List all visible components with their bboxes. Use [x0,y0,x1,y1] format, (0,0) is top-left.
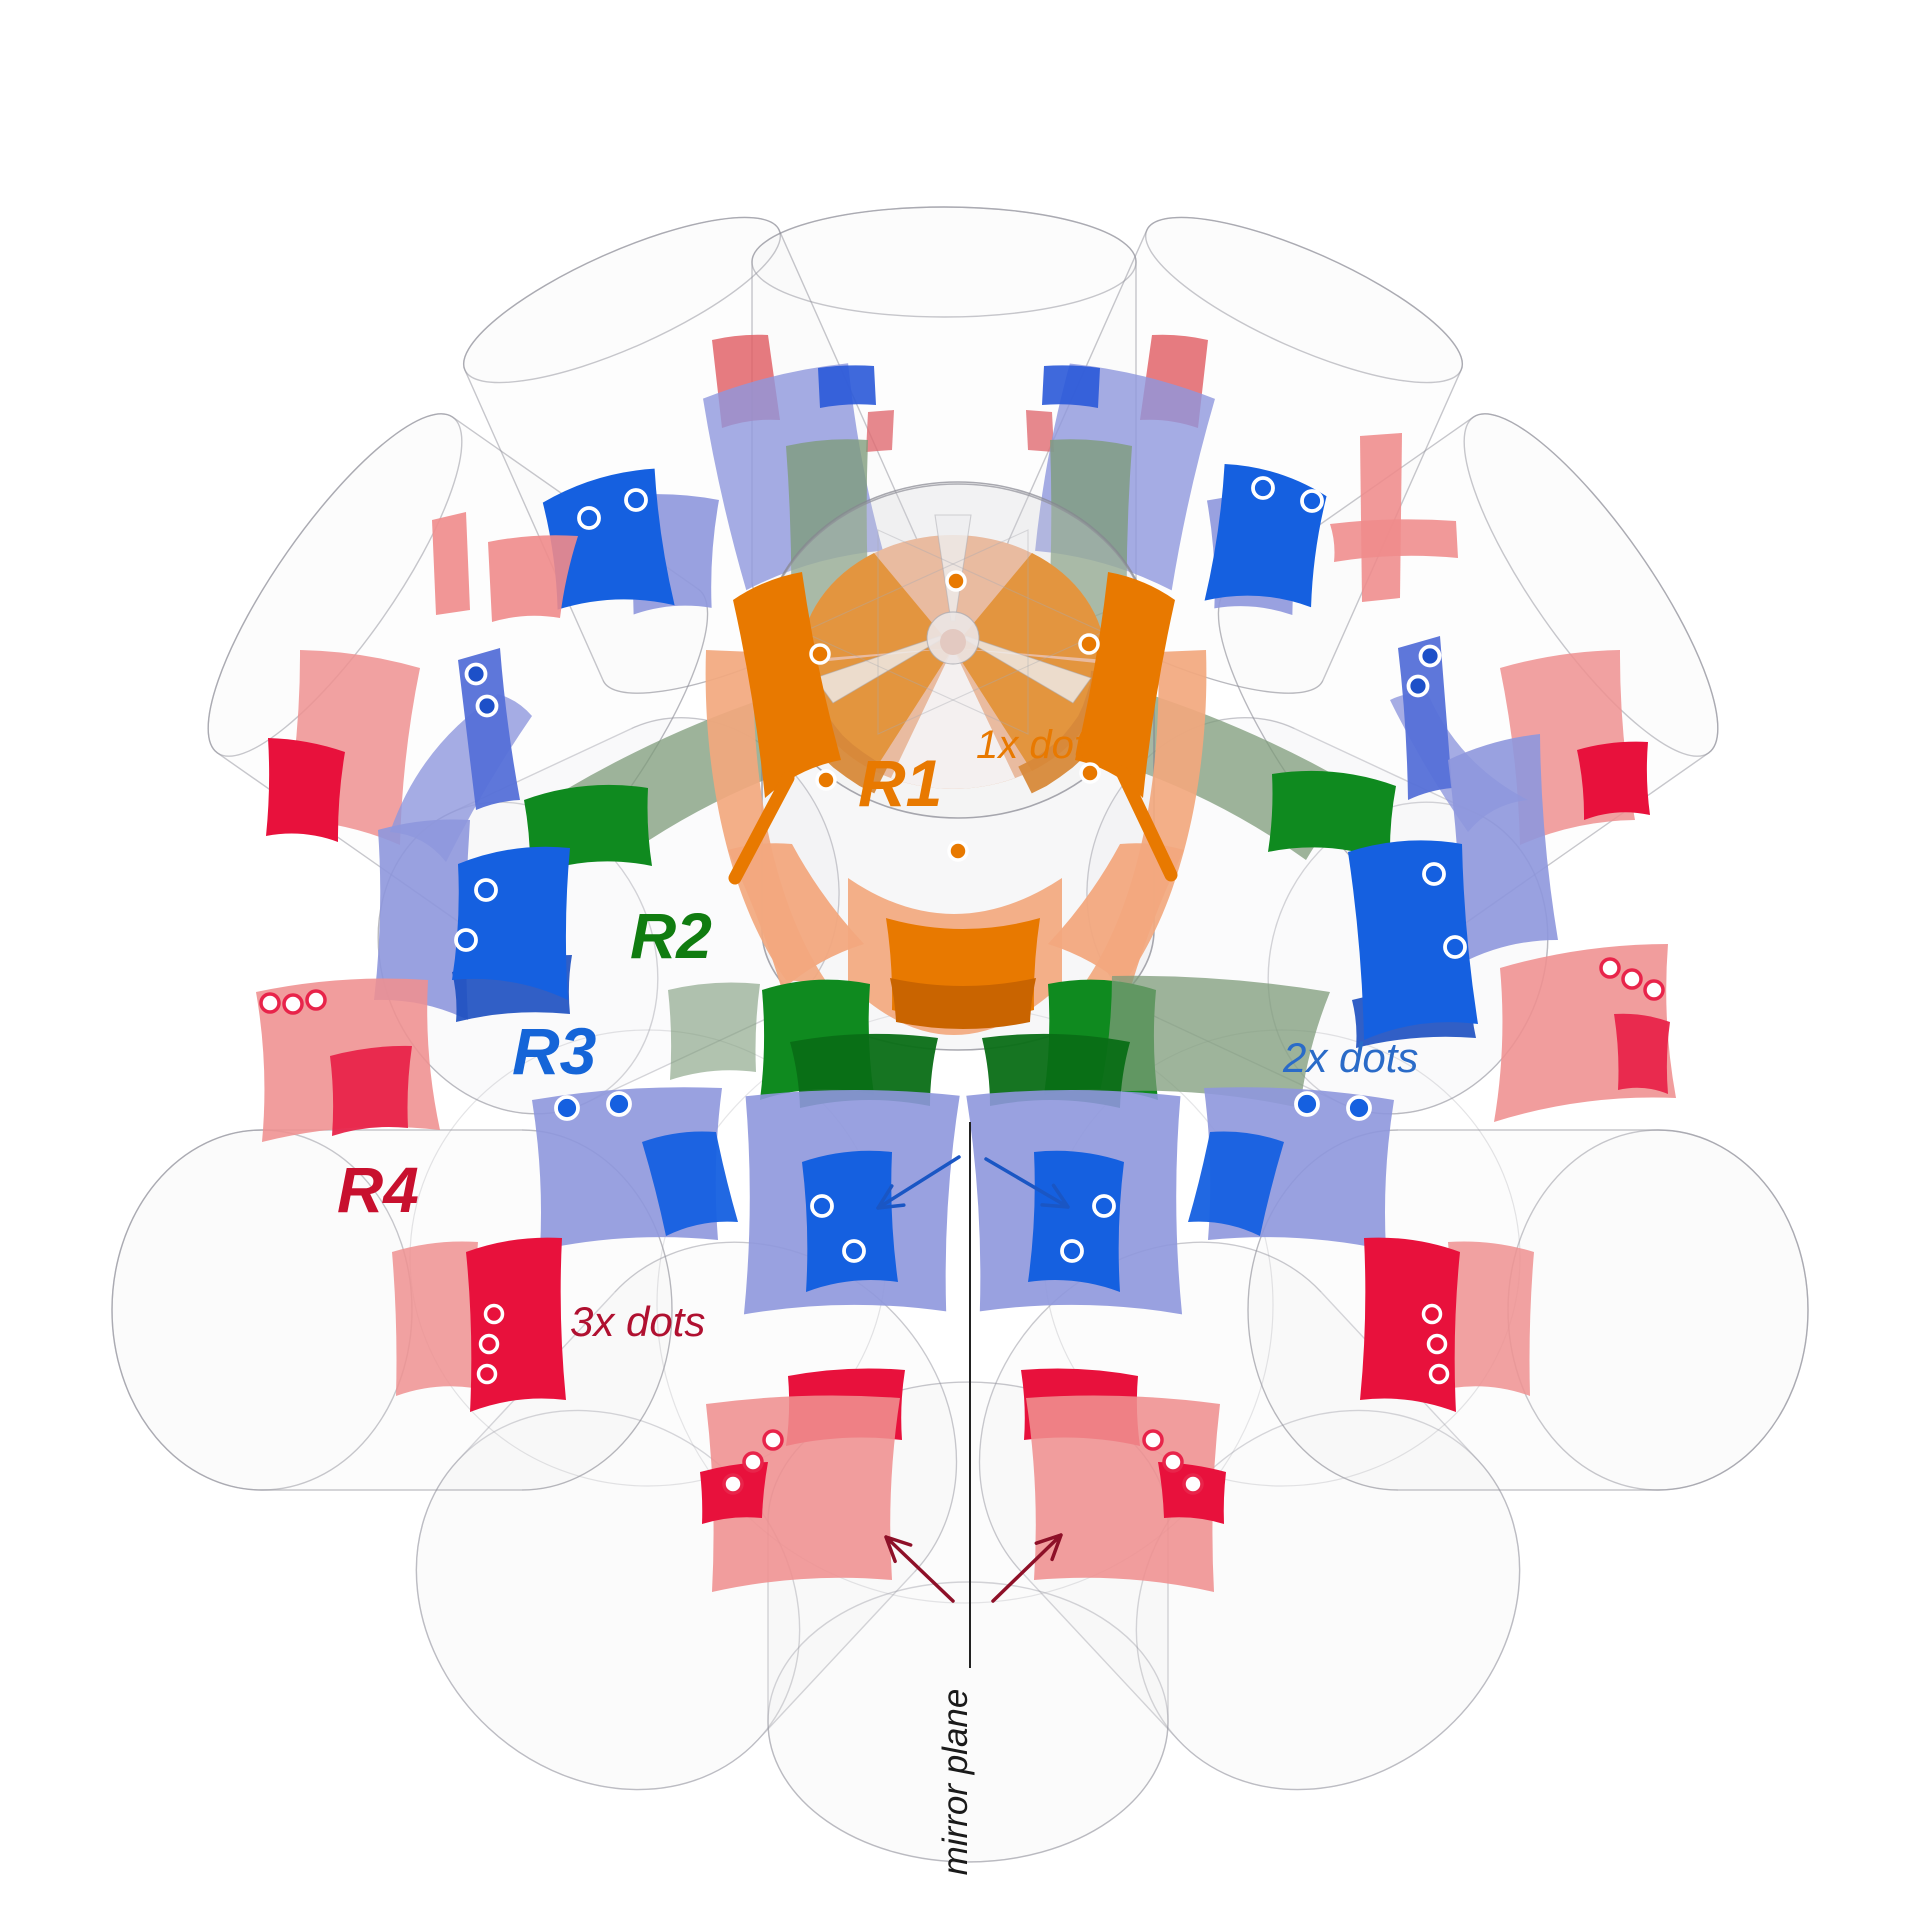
svg-text:R3: R3 [512,1014,596,1088]
svg-text:3x dots: 3x dots [570,1298,705,1345]
svg-text:R2: R2 [630,900,712,972]
svg-text:R4: R4 [337,1154,419,1226]
svg-text:mirror plane: mirror plane [936,1689,975,1876]
svg-text:1x dot: 1x dot [976,723,1087,767]
svg-text:2x dots: 2x dots [1282,1034,1418,1081]
svg-text:R1: R1 [858,746,942,820]
